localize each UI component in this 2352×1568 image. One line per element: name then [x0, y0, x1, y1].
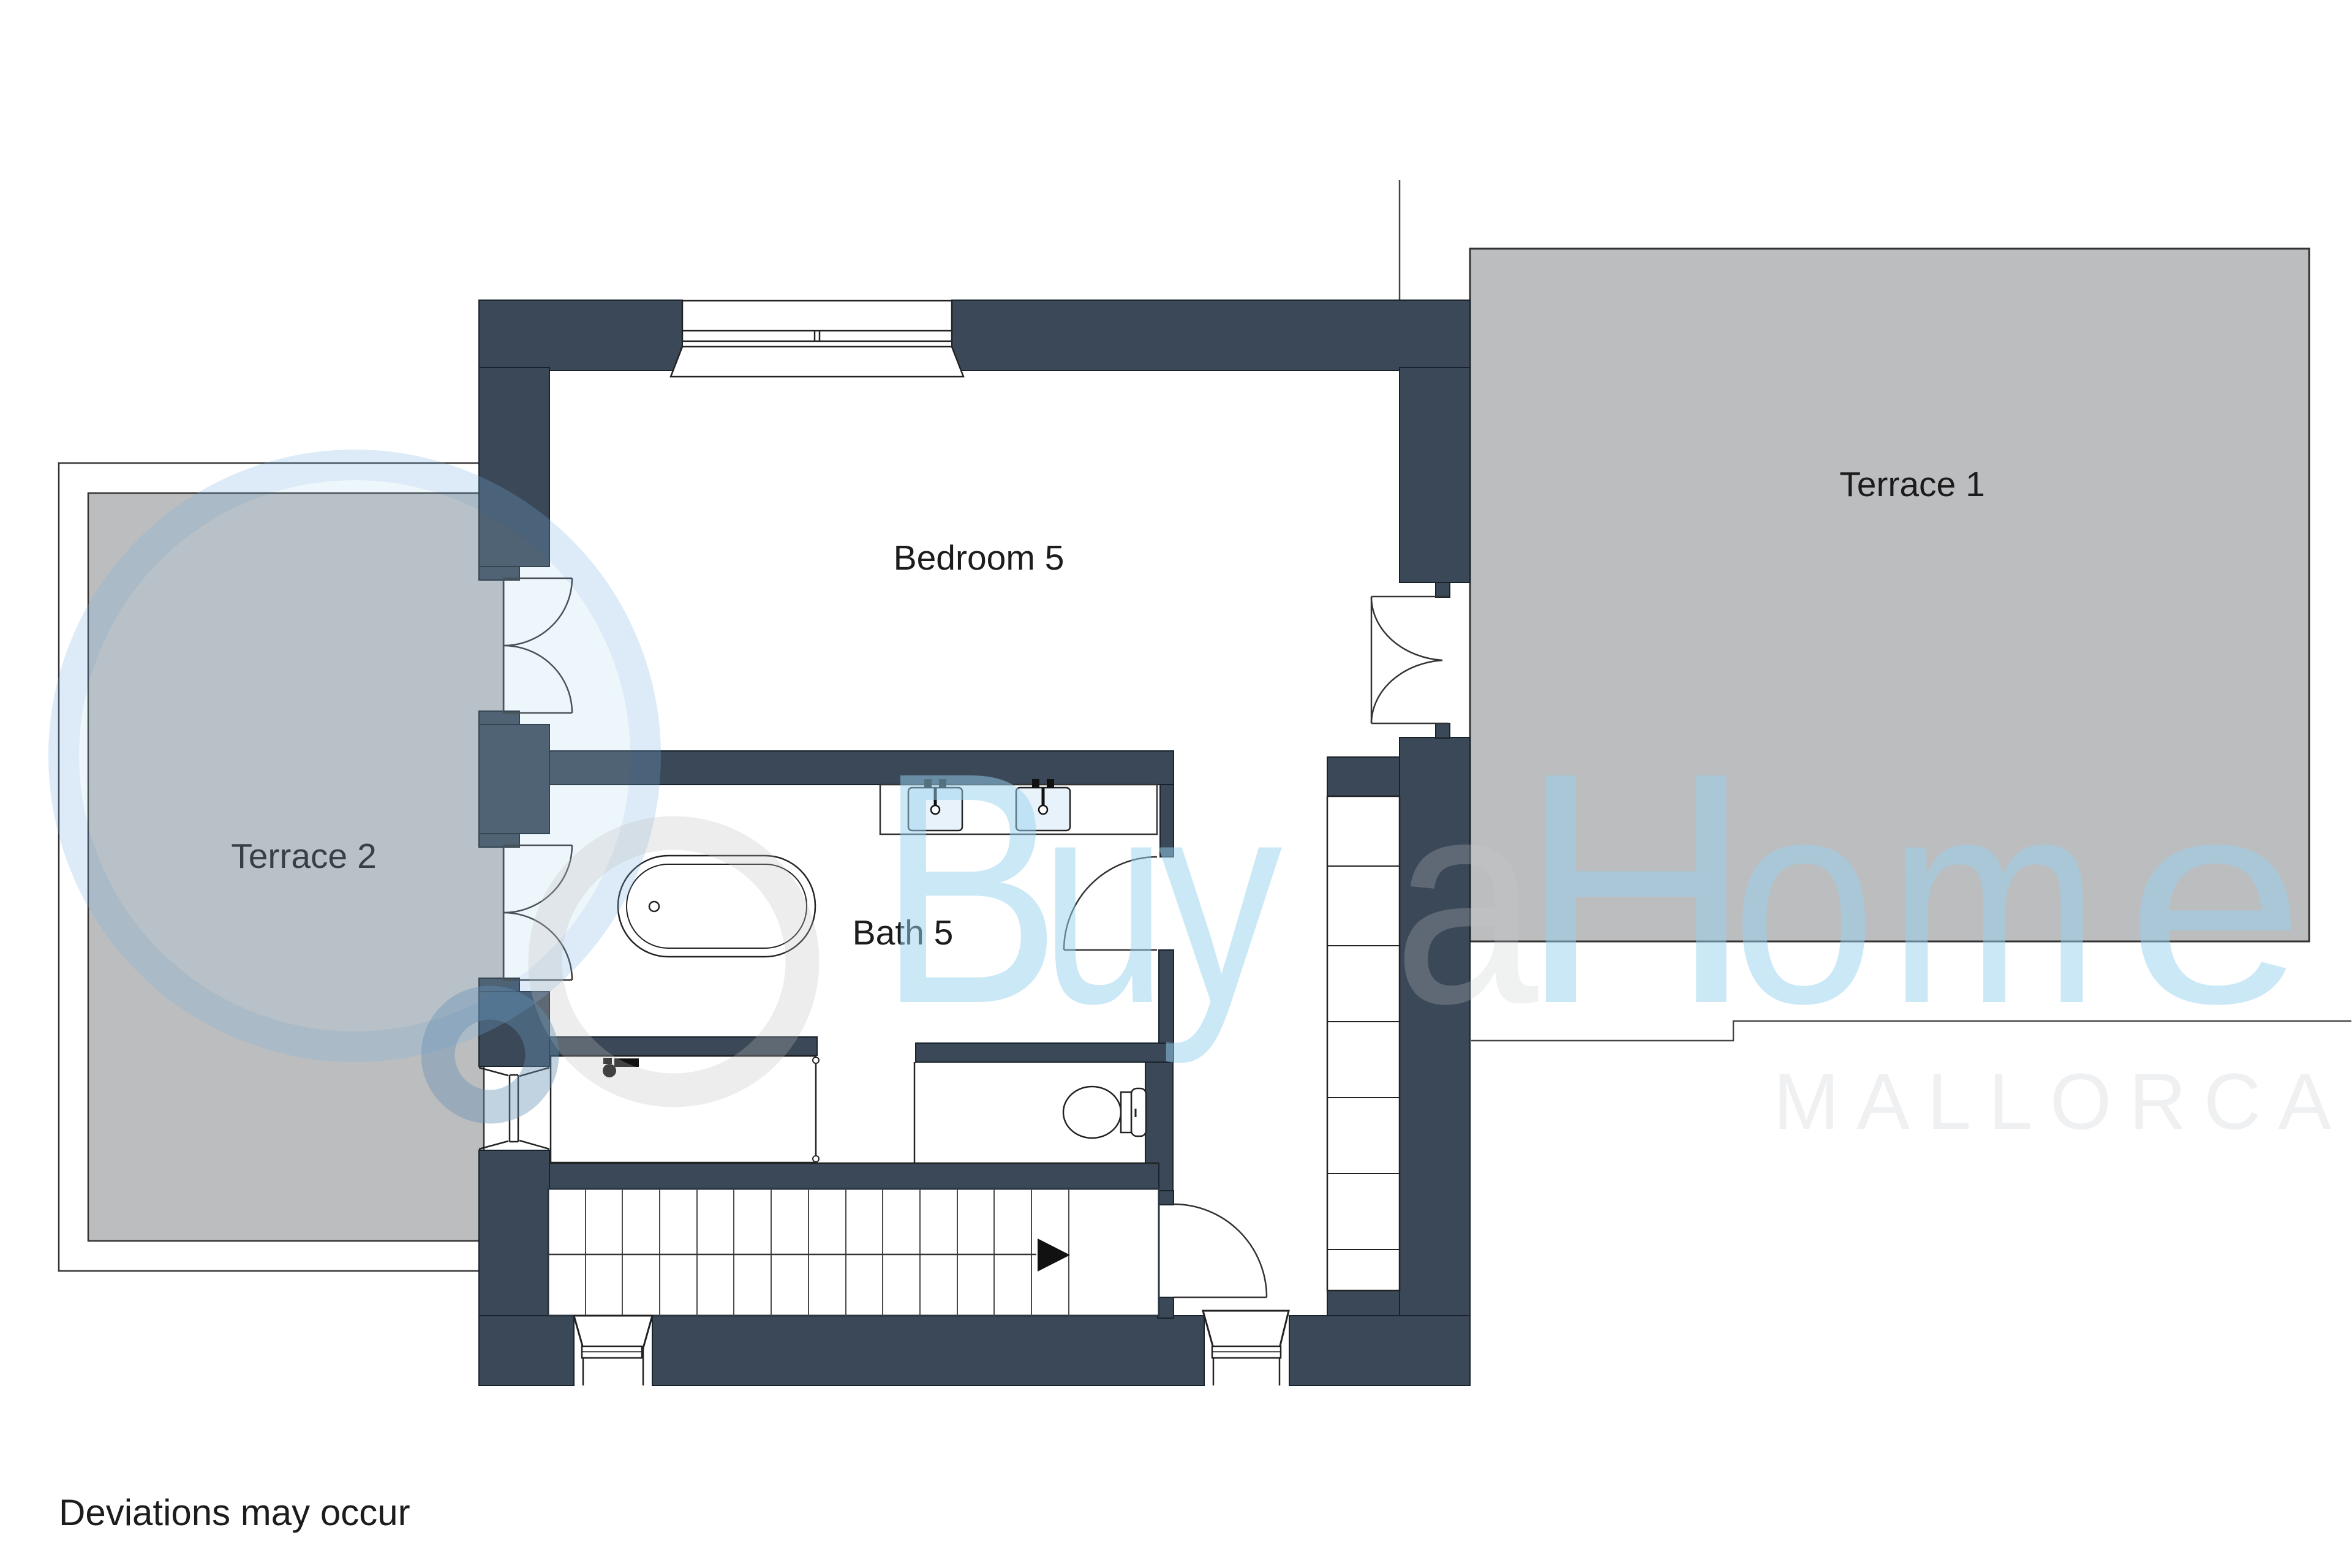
svg-text:Bedroom 5: Bedroom 5: [894, 538, 1065, 578]
svg-text:y: y: [1158, 737, 1282, 1066]
svg-text:u: u: [1041, 737, 1167, 1065]
svg-text:m: m: [1888, 737, 2100, 1064]
svg-text:Deviations may occur: Deviations may occur: [59, 1492, 410, 1533]
svg-text:e: e: [2126, 737, 2305, 1065]
svg-text:B: B: [878, 704, 1061, 1072]
svg-text:Terrace 1: Terrace 1: [1839, 465, 1985, 504]
svg-text:MALLORCA: MALLORCA: [1773, 1057, 2348, 1146]
svg-text:a: a: [1393, 737, 1540, 1065]
svg-text:H: H: [1520, 704, 1753, 1072]
svg-text:o: o: [1732, 737, 1876, 1065]
